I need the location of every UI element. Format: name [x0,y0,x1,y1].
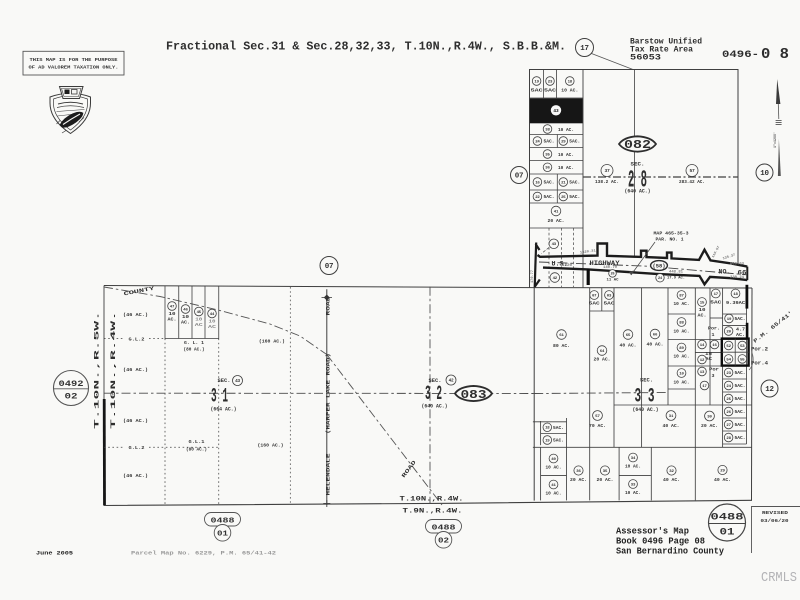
svg-text:G. L. 1: G. L. 1 [184,340,204,346]
svg-text:G.L.2: G.L.2 [129,336,145,342]
svg-text:10 AC.: 10 AC. [558,166,574,171]
svg-text:5AC.: 5AC. [735,424,746,428]
svg-text:10 AC.: 10 AC. [558,128,574,133]
svg-text:PAR. NO. 1: PAR. NO. 1 [656,237,684,243]
svg-text:Por: Por [709,368,719,373]
svg-text:(640 AC.): (640 AC.) [422,404,448,410]
svg-text:T.9N.,R.4W.: T.9N.,R.4W. [403,508,463,515]
svg-text:5AC.: 5AC. [735,385,746,389]
svg-text:17.9 AC.: 17.9 AC. [667,276,685,280]
svg-text:0496-: 0496- [722,49,759,61]
svg-text:11 AC: 11 AC [607,279,620,283]
svg-text:07: 07 [515,173,524,181]
svg-text:5AC.: 5AC. [735,398,746,402]
svg-text:ROAD: ROAD [325,297,331,316]
svg-text:(58): (58) [653,264,666,270]
svg-text:(160 AC.): (160 AC.) [258,443,284,449]
svg-text:0492: 0492 [59,380,84,389]
svg-text:03/06/20: 03/06/20 [761,518,789,524]
svg-text:40 AC.: 40 AC. [663,478,680,483]
svg-text:448.81: 448.81 [669,271,683,275]
svg-text:Por.2: Por.2 [751,347,768,353]
svg-text:10: 10 [182,316,190,320]
svg-text:MAP 465-35-3: MAP 465-35-3 [654,231,689,237]
svg-text:26: 26 [611,273,615,277]
svg-text:5AC.: 5AC. [735,437,746,441]
svg-text:20 AC.: 20 AC. [594,358,611,363]
svg-text:AC: AC [208,326,217,330]
svg-text:15: 15 [705,353,713,357]
svg-text:230.24: 230.24 [730,276,744,280]
svg-text:20 AC.: 20 AC. [701,424,718,429]
svg-text:37: 37 [604,168,610,174]
svg-text:5AC.: 5AC. [553,427,564,431]
svg-text:01: 01 [720,528,735,539]
svg-text:0 8: 0 8 [761,47,789,63]
svg-text:Barstow Unified: Barstow Unified [630,39,702,47]
svg-text:5AC.: 5AC. [553,440,564,444]
svg-text:70 AC.: 70 AC. [589,424,606,429]
svg-text:5AC.: 5AC. [544,182,555,186]
svg-text:02: 02 [438,537,449,545]
svg-text:80 AC.: 80 AC. [553,344,570,349]
svg-text:(46 AC.): (46 AC.) [123,473,148,479]
svg-text:170.77: 170.77 [531,270,535,283]
svg-text:10: 10 [760,170,769,178]
svg-text:3 3: 3 3 [635,386,655,409]
svg-text:(664 AC.): (664 AC.) [211,407,237,413]
svg-text:Por.: Por. [708,327,720,332]
svg-text:10: 10 [209,321,217,325]
svg-text:0488: 0488 [711,512,744,524]
svg-text:40 AC.: 40 AC. [647,343,664,348]
svg-text:T.10N.,R.4W.: T.10N.,R.4W. [110,311,117,429]
svg-text:5AC.: 5AC. [735,372,746,376]
svg-text:G.L.1: G.L.1 [189,439,205,445]
svg-text:10 AC.: 10 AC. [546,493,562,497]
svg-text:REVISED: REVISED [762,510,788,516]
svg-text:AC.: AC. [181,322,190,326]
svg-text:Parcel Map No. 6229, P.M. 65/4: Parcel Map No. 6229, P.M. 65/41-42 [131,551,276,557]
svg-text:12: 12 [765,386,774,394]
svg-text:G.L.2: G.L.2 [129,445,145,451]
svg-text:20 AC.: 20 AC. [548,219,565,224]
svg-text:02: 02 [65,393,78,402]
svg-text:5AC.: 5AC. [569,196,580,200]
svg-text:10 AC.: 10 AC. [625,466,641,470]
svg-text:1"=1200': 1"=1200' [773,132,778,148]
svg-text:56053: 56053 [630,55,661,63]
svg-text:10 AC.: 10 AC. [674,303,690,307]
svg-text:5AC: 5AC [710,302,722,306]
svg-text:5AC.: 5AC. [544,141,555,145]
svg-text:Tax Rate Area: Tax Rate Area [630,47,693,55]
svg-text:20 AC.: 20 AC. [597,478,614,483]
svg-text:AC: AC [195,324,204,328]
svg-text:01: 01 [217,530,229,538]
svg-text:HELENDALE: HELENDALE [325,454,331,496]
svg-text:June 2005: June 2005 [36,551,73,557]
svg-text:(80 AC.): (80 AC.) [186,448,207,453]
svg-text:Por.4: Por.4 [751,361,768,367]
svg-text:5AC.: 5AC. [735,411,746,415]
svg-text:OF AD VALOREM TAXATION ONLY.: OF AD VALOREM TAXATION ONLY. [29,64,119,70]
svg-text:10 AC.: 10 AC. [625,492,641,496]
svg-text:10 AC.: 10 AC. [558,153,574,158]
svg-text:B60.63: B60.63 [730,263,744,267]
svg-text:3 1: 3 1 [211,386,228,409]
svg-text:AC.: AC. [736,334,745,338]
svg-text:083: 083 [461,389,487,402]
svg-text:5AC.: 5AC. [569,141,580,145]
svg-text:1: 1 [712,333,715,338]
svg-text:AC.: AC. [168,319,177,323]
svg-text:(80 AC.): (80 AC.) [184,348,205,353]
svg-text:07: 07 [325,263,334,271]
svg-text:NO.: NO. [719,268,731,275]
svg-text:Fractional Sec.31 & Sec.28,32,: Fractional Sec.31 & Sec.28,32,33, T.10N.… [166,40,566,54]
svg-text:THIS MAP IS FOR THE PURPOSE: THIS MAP IS FOR THE PURPOSE [30,57,118,63]
svg-text:138.2 AC.: 138.2 AC. [595,180,619,185]
svg-text:5AC.: 5AC. [544,196,555,200]
svg-text:10 AC.: 10 AC. [546,467,562,471]
svg-text:10 AC.: 10 AC. [561,89,578,94]
svg-text:CRMLS: CRMLS [761,571,797,586]
svg-text:40 AC.: 40 AC. [714,478,731,483]
svg-text:57: 57 [689,168,695,174]
svg-text:3: 3 [712,374,715,379]
svg-text:10: 10 [699,309,707,313]
svg-text:T.10N.,R.4W.: T.10N.,R.4W. [400,496,464,503]
svg-text:43: 43 [553,109,559,114]
svg-text:SEC.: SEC. [218,378,231,384]
svg-text:10 AC.: 10 AC. [674,382,690,386]
svg-text:5AC: 5AC [589,303,601,307]
svg-text:5AC: 5AC [604,303,616,307]
svg-text:T.10N.,R.5W.: T.10N.,R.5W. [94,311,101,429]
svg-text:40 AC.: 40 AC. [620,344,637,349]
svg-text:5AC: 5AC [531,89,544,94]
svg-text:(46 AC.): (46 AC.) [123,418,148,424]
svg-text:(640 AC.): (640 AC.) [625,189,651,195]
svg-text:10: 10 [195,319,203,323]
svg-text:San Bernardino County: San Bernardino County [616,546,724,557]
svg-text:283.42 AC.: 283.42 AC. [679,180,705,185]
svg-text:20 AC.: 20 AC. [570,478,587,483]
svg-text:40 AC.: 40 AC. [663,424,680,429]
svg-text:082: 082 [624,138,651,152]
svg-text:SEC.: SEC. [640,378,653,384]
svg-text:10 AC.: 10 AC. [674,356,690,360]
svg-text:140.79: 140.79 [603,266,617,270]
svg-text:5AC: 5AC [544,89,557,94]
svg-text:10: 10 [169,313,177,317]
svg-text:5AC.: 5AC. [735,318,746,322]
svg-text:AC.: AC. [698,315,707,319]
svg-text:43: 43 [235,379,240,384]
svg-text:9.39AC: 9.39AC [726,302,746,306]
svg-text:(46 AC.): (46 AC.) [123,367,148,373]
svg-text:(640 AC.): (640 AC.) [633,407,659,413]
svg-text:1320: 1320 [562,264,572,268]
svg-text:10 AC.: 10 AC. [674,331,690,335]
svg-text:4.7: 4.7 [736,329,746,333]
svg-text:17: 17 [580,45,589,53]
svg-text:(46 AC.): (46 AC.) [123,312,148,318]
svg-text:(160 AC.): (160 AC.) [259,339,285,345]
svg-text:5AC.: 5AC. [569,182,580,186]
svg-text:42: 42 [449,379,454,384]
